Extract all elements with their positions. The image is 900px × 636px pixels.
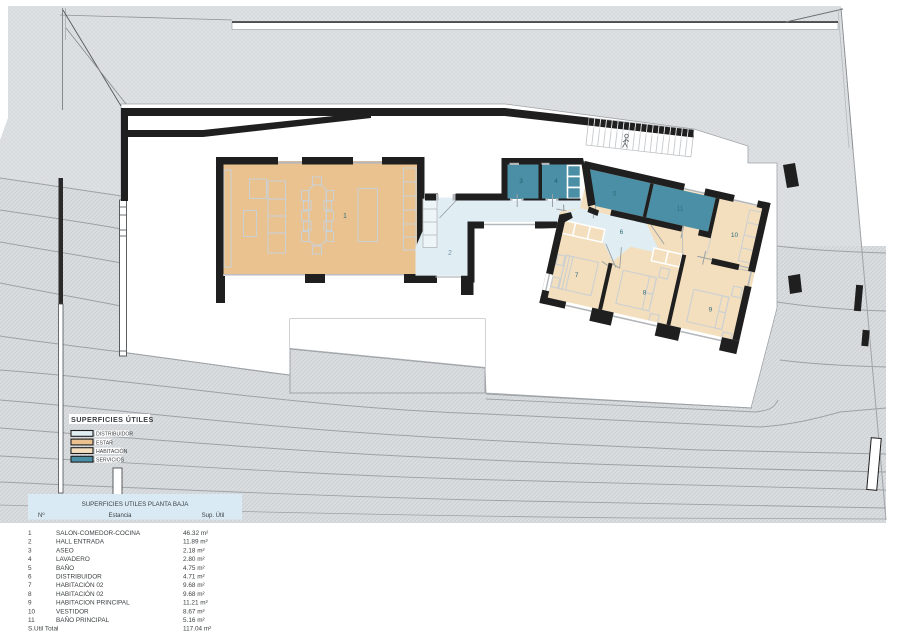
svg-text:11.89 m²: 11.89 m² xyxy=(183,539,208,546)
svg-text:2: 2 xyxy=(28,539,32,546)
svg-text:4.75 m²: 4.75 m² xyxy=(183,565,205,572)
svg-text:5.16 m²: 5.16 m² xyxy=(183,617,205,624)
svg-text:11: 11 xyxy=(28,617,35,624)
svg-text:6: 6 xyxy=(28,574,32,581)
svg-text:1: 1 xyxy=(343,213,347,220)
svg-text:HALL ENTRADA: HALL ENTRADA xyxy=(56,539,105,546)
svg-text:9.68 m²: 9.68 m² xyxy=(183,591,205,598)
svg-text:7: 7 xyxy=(575,272,579,279)
svg-text:Sup. Útil: Sup. Útil xyxy=(202,512,225,519)
svg-text:7: 7 xyxy=(28,582,32,589)
svg-text:8: 8 xyxy=(643,290,647,297)
svg-text:4: 4 xyxy=(554,178,558,185)
svg-text:ESTAR: ESTAR xyxy=(96,440,113,446)
svg-text:5: 5 xyxy=(613,191,617,198)
svg-text:2.80 m²: 2.80 m² xyxy=(183,556,205,563)
svg-text:46.32 m²: 46.32 m² xyxy=(183,530,208,537)
svg-text:9.68 m²: 9.68 m² xyxy=(183,582,205,589)
svg-text:Nº: Nº xyxy=(38,512,45,519)
svg-text:HABITACIÓN 02: HABITACIÓN 02 xyxy=(56,589,104,598)
svg-text:5: 5 xyxy=(28,565,32,572)
svg-text:Estancia: Estancia xyxy=(108,513,132,519)
svg-text:10: 10 xyxy=(28,608,36,615)
svg-text:BAÑO PRINCIPAL: BAÑO PRINCIPAL xyxy=(56,615,110,624)
svg-text:HABITACIÓN: HABITACIÓN xyxy=(96,448,128,455)
svg-text:DISTRIBUIDOR: DISTRIBUIDOR xyxy=(56,574,102,581)
svg-text:4: 4 xyxy=(28,556,32,563)
svg-text:LAVADERO: LAVADERO xyxy=(56,556,90,563)
svg-text:8.67 m²: 8.67 m² xyxy=(183,608,205,615)
svg-text:6: 6 xyxy=(620,229,624,236)
svg-text:SALON-COMEDOR-COCINA: SALON-COMEDOR-COCINA xyxy=(56,530,141,537)
svg-text:VESTIDOR: VESTIDOR xyxy=(56,608,89,615)
svg-text:2: 2 xyxy=(448,250,452,257)
svg-text:9: 9 xyxy=(28,600,32,607)
svg-text:9: 9 xyxy=(709,307,713,314)
svg-text:1: 1 xyxy=(28,530,32,537)
svg-text:SUPERFICIES UTILES PLANTA BAJA: SUPERFICIES UTILES PLANTA BAJA xyxy=(82,501,190,508)
svg-text:3: 3 xyxy=(28,547,32,554)
svg-text:117.04 m²: 117.04 m² xyxy=(183,626,211,633)
svg-text:2.18 m²: 2.18 m² xyxy=(183,547,205,554)
svg-text:HABITACION PRINCIPAL: HABITACION PRINCIPAL xyxy=(56,600,130,607)
svg-text:8: 8 xyxy=(28,591,32,598)
svg-text:SERVICIOS: SERVICIOS xyxy=(96,458,125,464)
svg-text:ASEO: ASEO xyxy=(56,547,74,554)
svg-text:HABITACIÓN 02: HABITACIÓN 02 xyxy=(56,580,104,589)
svg-text:10: 10 xyxy=(731,232,739,239)
svg-text:DISTRIBUIDOR: DISTRIBUIDOR xyxy=(96,432,133,438)
svg-text:BAÑO: BAÑO xyxy=(56,563,74,572)
svg-text:11: 11 xyxy=(677,205,684,212)
svg-text:4.71 m²: 4.71 m² xyxy=(183,574,205,581)
svg-text:SUPERFICIES ÚTILES: SUPERFICIES ÚTILES xyxy=(71,415,154,424)
svg-text:11.21 m²: 11.21 m² xyxy=(183,600,208,607)
svg-text:S.Util Total: S.Util Total xyxy=(28,626,58,633)
svg-text:3: 3 xyxy=(519,178,523,185)
